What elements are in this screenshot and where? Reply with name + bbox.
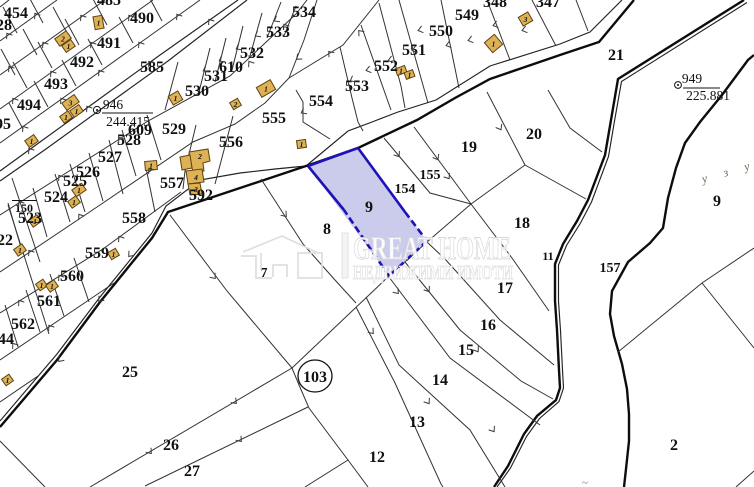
svg-text:555: 555 <box>262 110 286 127</box>
svg-text:529: 529 <box>162 121 186 138</box>
svg-text:493: 493 <box>44 76 68 93</box>
svg-text:534: 534 <box>292 4 316 21</box>
svg-text:16: 16 <box>480 317 496 334</box>
svg-text:27: 27 <box>184 463 200 480</box>
svg-text:490: 490 <box>130 10 154 27</box>
svg-text:585: 585 <box>140 59 164 76</box>
svg-text:157: 157 <box>600 261 621 276</box>
svg-text:494: 494 <box>17 97 41 114</box>
svg-text:1: 1 <box>174 94 178 103</box>
svg-text:348: 348 <box>483 0 507 11</box>
svg-text:559: 559 <box>85 245 109 262</box>
svg-text:1: 1 <box>112 250 116 259</box>
svg-text:946: 946 <box>103 97 124 112</box>
svg-text:557: 557 <box>160 175 184 192</box>
svg-text:532: 532 <box>240 45 264 62</box>
svg-text:44: 44 <box>0 331 14 348</box>
svg-text:1: 1 <box>67 42 71 51</box>
svg-text:25: 25 <box>122 364 138 381</box>
svg-text:485: 485 <box>97 0 121 9</box>
svg-text:18: 18 <box>514 215 530 232</box>
svg-text:GREAT HOME: GREAT HOME <box>353 231 511 267</box>
svg-text:11: 11 <box>542 249 553 263</box>
svg-text:1: 1 <box>30 137 34 146</box>
svg-text:553: 553 <box>345 78 369 95</box>
svg-text:530: 530 <box>185 83 209 100</box>
svg-text:561: 561 <box>37 293 61 310</box>
svg-text:225.881: 225.881 <box>686 88 730 103</box>
svg-text:949: 949 <box>682 71 703 86</box>
svg-text:1: 1 <box>40 281 44 290</box>
svg-text:1: 1 <box>50 282 54 291</box>
svg-text:492: 492 <box>70 54 94 71</box>
svg-text:2: 2 <box>233 100 238 109</box>
svg-text:1: 1 <box>399 67 403 76</box>
svg-text:556: 556 <box>219 134 243 151</box>
svg-text:528: 528 <box>117 132 141 149</box>
svg-text:527: 527 <box>98 149 122 166</box>
svg-text:1: 1 <box>408 71 412 80</box>
svg-text:1: 1 <box>264 85 268 94</box>
svg-text:9: 9 <box>713 193 721 210</box>
svg-text:1: 1 <box>18 246 22 255</box>
svg-text:1: 1 <box>64 113 68 122</box>
svg-text:347: 347 <box>536 0 560 11</box>
svg-text:95: 95 <box>0 116 11 133</box>
svg-text:562: 562 <box>11 316 35 333</box>
svg-text:551: 551 <box>402 42 426 59</box>
svg-text:14: 14 <box>432 372 448 389</box>
svg-text:558: 558 <box>122 210 146 227</box>
svg-text:1: 1 <box>300 140 304 149</box>
svg-text:154: 154 <box>395 182 416 197</box>
svg-text:1: 1 <box>97 19 101 28</box>
svg-text:103: 103 <box>303 369 327 386</box>
svg-text:155: 155 <box>420 168 441 183</box>
svg-text:2: 2 <box>60 35 65 44</box>
svg-text:8: 8 <box>323 221 331 238</box>
svg-text:3: 3 <box>68 99 73 108</box>
svg-text:3: 3 <box>523 15 528 24</box>
svg-text:554: 554 <box>309 93 333 110</box>
svg-text:2: 2 <box>197 152 202 161</box>
svg-text:9: 9 <box>365 199 373 216</box>
svg-text:19: 19 <box>461 139 477 156</box>
svg-text:552: 552 <box>374 58 398 75</box>
svg-text:549: 549 <box>455 7 479 24</box>
svg-text:1: 1 <box>72 198 76 207</box>
svg-text:20: 20 <box>526 126 542 143</box>
svg-text:550: 550 <box>429 23 453 40</box>
svg-text:525: 525 <box>63 173 87 190</box>
svg-text:21: 21 <box>608 47 624 64</box>
svg-text:1: 1 <box>75 107 79 116</box>
svg-text:1: 1 <box>6 376 10 385</box>
svg-text:28: 28 <box>0 17 12 34</box>
svg-text:491: 491 <box>97 35 121 52</box>
svg-text:НЕДВИЖИМИ ИМОТИ: НЕДВИЖИМИ ИМОТИ <box>353 263 513 284</box>
svg-text:533: 533 <box>266 24 290 41</box>
svg-text:12: 12 <box>369 449 385 466</box>
svg-text:524: 524 <box>44 189 68 206</box>
svg-text:592: 592 <box>189 187 213 204</box>
svg-text:26: 26 <box>163 437 179 454</box>
svg-text:22: 22 <box>0 232 13 249</box>
svg-text:~: ~ <box>582 477 588 487</box>
svg-text:13: 13 <box>409 414 425 431</box>
svg-text:15: 15 <box>458 342 474 359</box>
svg-text:4: 4 <box>193 173 198 182</box>
svg-text:1: 1 <box>492 40 496 49</box>
svg-text:2: 2 <box>670 437 678 454</box>
